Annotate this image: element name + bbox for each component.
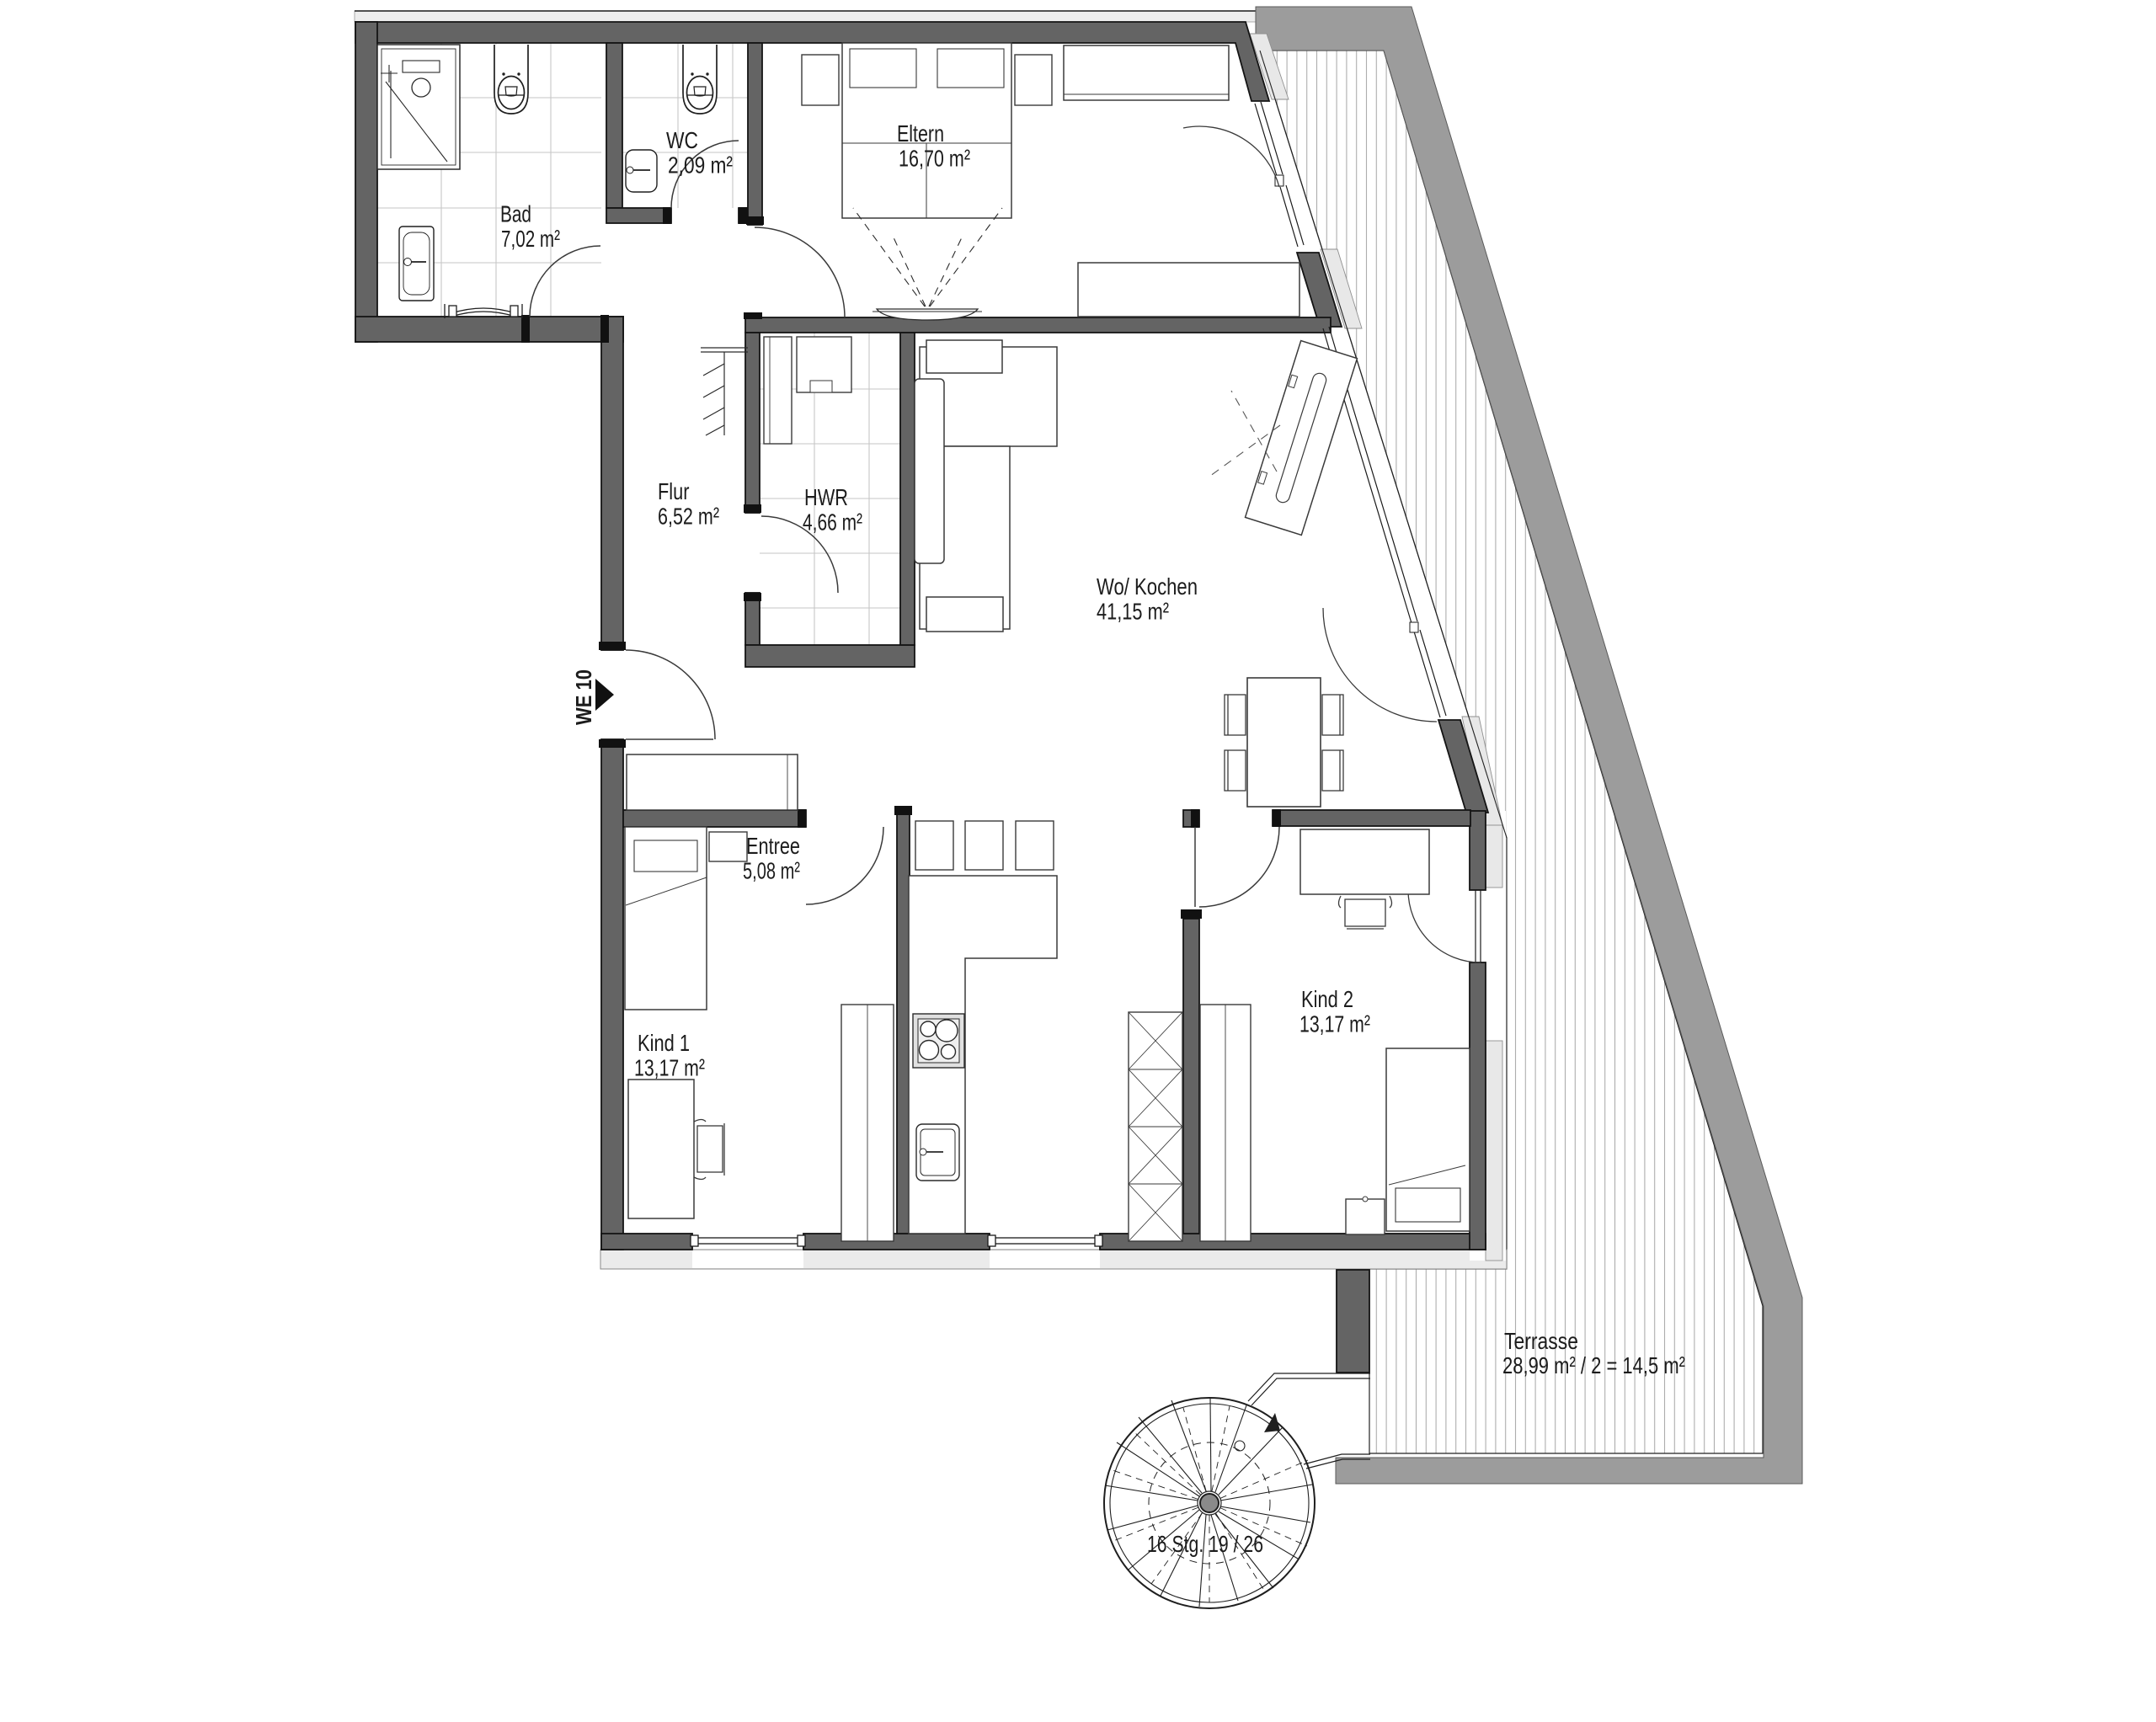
svg-text:Kind 1: Kind 1 <box>638 1030 690 1056</box>
svg-text:13,17 m²: 13,17 m² <box>634 1055 705 1081</box>
svg-text:Bad: Bad <box>500 201 531 227</box>
svg-text:5,08 m²: 5,08 m² <box>743 858 800 884</box>
svg-text:41,15 m²: 41,15 m² <box>1097 599 1169 625</box>
svg-text:4,66 m²: 4,66 m² <box>803 509 862 536</box>
svg-text:7,02 m²: 7,02 m² <box>501 226 560 252</box>
svg-text:Wo/ Kochen: Wo/ Kochen <box>1097 573 1198 600</box>
svg-text:13,17 m²: 13,17 m² <box>1299 1011 1370 1037</box>
svg-text:HWR: HWR <box>804 484 848 510</box>
svg-text:2,09 m²: 2,09 m² <box>668 152 733 179</box>
svg-text:Flur: Flur <box>658 478 690 504</box>
svg-text:WE 10: WE 10 <box>571 669 596 725</box>
svg-text:Kind 2: Kind 2 <box>1301 986 1353 1012</box>
svg-text:Entree: Entree <box>746 833 800 859</box>
svg-text:WC: WC <box>666 127 698 153</box>
svg-text:16,70 m²: 16,70 m² <box>899 146 970 172</box>
svg-text:Terrasse: Terrasse <box>1504 1328 1578 1354</box>
svg-text:6,52 m²: 6,52 m² <box>658 504 719 530</box>
svg-text:28,99 m² / 2 = 14,5 m²: 28,99 m² / 2 = 14,5 m² <box>1502 1352 1685 1378</box>
svg-text:16 Stg. 19 / 26: 16 Stg. 19 / 26 <box>1147 1531 1263 1557</box>
svg-text:Eltern: Eltern <box>897 120 944 147</box>
